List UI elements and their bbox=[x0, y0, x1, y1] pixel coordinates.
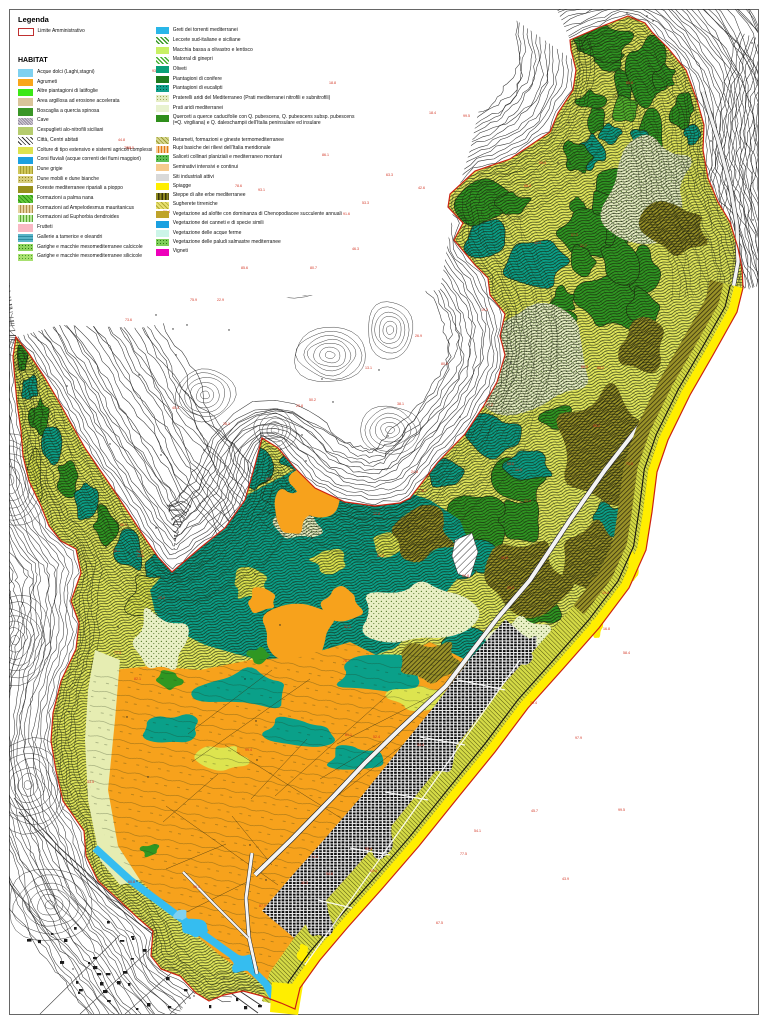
svg-text:92.2: 92.2 bbox=[344, 625, 351, 629]
svg-text:77.9: 77.9 bbox=[114, 651, 121, 655]
svg-text:67.5: 67.5 bbox=[436, 921, 443, 925]
svg-text:24.8: 24.8 bbox=[411, 470, 418, 474]
svg-text:75.9: 75.9 bbox=[190, 298, 197, 302]
svg-text:65.4: 65.4 bbox=[370, 869, 377, 873]
svg-text:45.3: 45.3 bbox=[172, 406, 179, 410]
svg-text:68.9: 68.9 bbox=[581, 365, 588, 369]
svg-text:78.7: 78.7 bbox=[420, 489, 427, 493]
svg-text:16.8: 16.8 bbox=[603, 627, 610, 631]
svg-text:99.5: 99.5 bbox=[618, 808, 625, 812]
svg-text:73.2: 73.2 bbox=[486, 403, 493, 407]
svg-text:68.6: 68.6 bbox=[507, 462, 514, 466]
svg-text:52.4: 52.4 bbox=[373, 735, 380, 739]
svg-text:23.8: 23.8 bbox=[296, 404, 303, 408]
svg-text:39.4: 39.4 bbox=[530, 701, 537, 705]
svg-text:38.1: 38.1 bbox=[113, 549, 120, 553]
svg-text:22.9: 22.9 bbox=[217, 298, 224, 302]
svg-text:60.8: 60.8 bbox=[128, 880, 135, 884]
svg-text:26.1: 26.1 bbox=[223, 422, 230, 426]
svg-text:41.9: 41.9 bbox=[524, 499, 531, 503]
svg-text:33.5: 33.5 bbox=[87, 780, 94, 784]
svg-text:58.4: 58.4 bbox=[623, 651, 630, 655]
svg-text:81.1: 81.1 bbox=[345, 733, 352, 737]
svg-text:26.9: 26.9 bbox=[415, 334, 422, 338]
svg-text:81.3: 81.3 bbox=[377, 554, 384, 558]
svg-text:95.2: 95.2 bbox=[593, 424, 600, 428]
svg-text:19.4: 19.4 bbox=[602, 591, 609, 595]
svg-text:42.4: 42.4 bbox=[534, 241, 541, 245]
svg-text:71.5: 71.5 bbox=[626, 462, 633, 466]
svg-text:45.7: 45.7 bbox=[531, 809, 538, 813]
svg-text:30.3: 30.3 bbox=[301, 881, 308, 885]
svg-text:56.1: 56.1 bbox=[120, 523, 127, 527]
svg-text:55.4: 55.4 bbox=[365, 847, 372, 851]
svg-text:80.9: 80.9 bbox=[441, 362, 448, 366]
svg-text:50.2: 50.2 bbox=[309, 398, 316, 402]
svg-text:84.8: 84.8 bbox=[462, 574, 469, 578]
svg-text:34.6: 34.6 bbox=[515, 468, 522, 472]
svg-text:87.9: 87.9 bbox=[259, 904, 266, 908]
svg-text:67.3: 67.3 bbox=[571, 233, 578, 237]
svg-text:50.6: 50.6 bbox=[501, 556, 508, 560]
svg-text:88.2: 88.2 bbox=[597, 366, 604, 370]
svg-text:29.3: 29.3 bbox=[507, 586, 514, 590]
svg-text:19.2: 19.2 bbox=[481, 308, 488, 312]
svg-text:74.3: 74.3 bbox=[311, 855, 318, 859]
svg-text:54.6: 54.6 bbox=[326, 872, 333, 876]
svg-text:78.2: 78.2 bbox=[136, 550, 143, 554]
svg-text:25.9: 25.9 bbox=[158, 596, 165, 600]
svg-text:85.8: 85.8 bbox=[626, 81, 633, 85]
svg-text:34.6: 34.6 bbox=[137, 554, 144, 558]
svg-text:56.3: 56.3 bbox=[193, 885, 200, 889]
svg-text:34.4: 34.4 bbox=[417, 743, 424, 747]
svg-text:73.6: 73.6 bbox=[125, 318, 132, 322]
svg-text:59.4: 59.4 bbox=[539, 161, 546, 165]
svg-text:54.1: 54.1 bbox=[474, 829, 481, 833]
svg-text:13.1: 13.1 bbox=[365, 366, 372, 370]
svg-text:88.1: 88.1 bbox=[266, 477, 273, 481]
svg-text:99.4: 99.4 bbox=[245, 748, 252, 752]
svg-text:12.8: 12.8 bbox=[373, 512, 380, 516]
svg-text:38.1: 38.1 bbox=[397, 402, 404, 406]
svg-text:82.1: 82.1 bbox=[134, 677, 141, 681]
svg-text:97.9: 97.9 bbox=[575, 736, 582, 740]
svg-text:43.9: 43.9 bbox=[562, 877, 569, 881]
svg-text:86.8: 86.8 bbox=[524, 184, 531, 188]
svg-text:76.1: 76.1 bbox=[343, 659, 350, 663]
svg-text:21.7: 21.7 bbox=[580, 244, 587, 248]
svg-text:77.5: 77.5 bbox=[460, 852, 467, 856]
